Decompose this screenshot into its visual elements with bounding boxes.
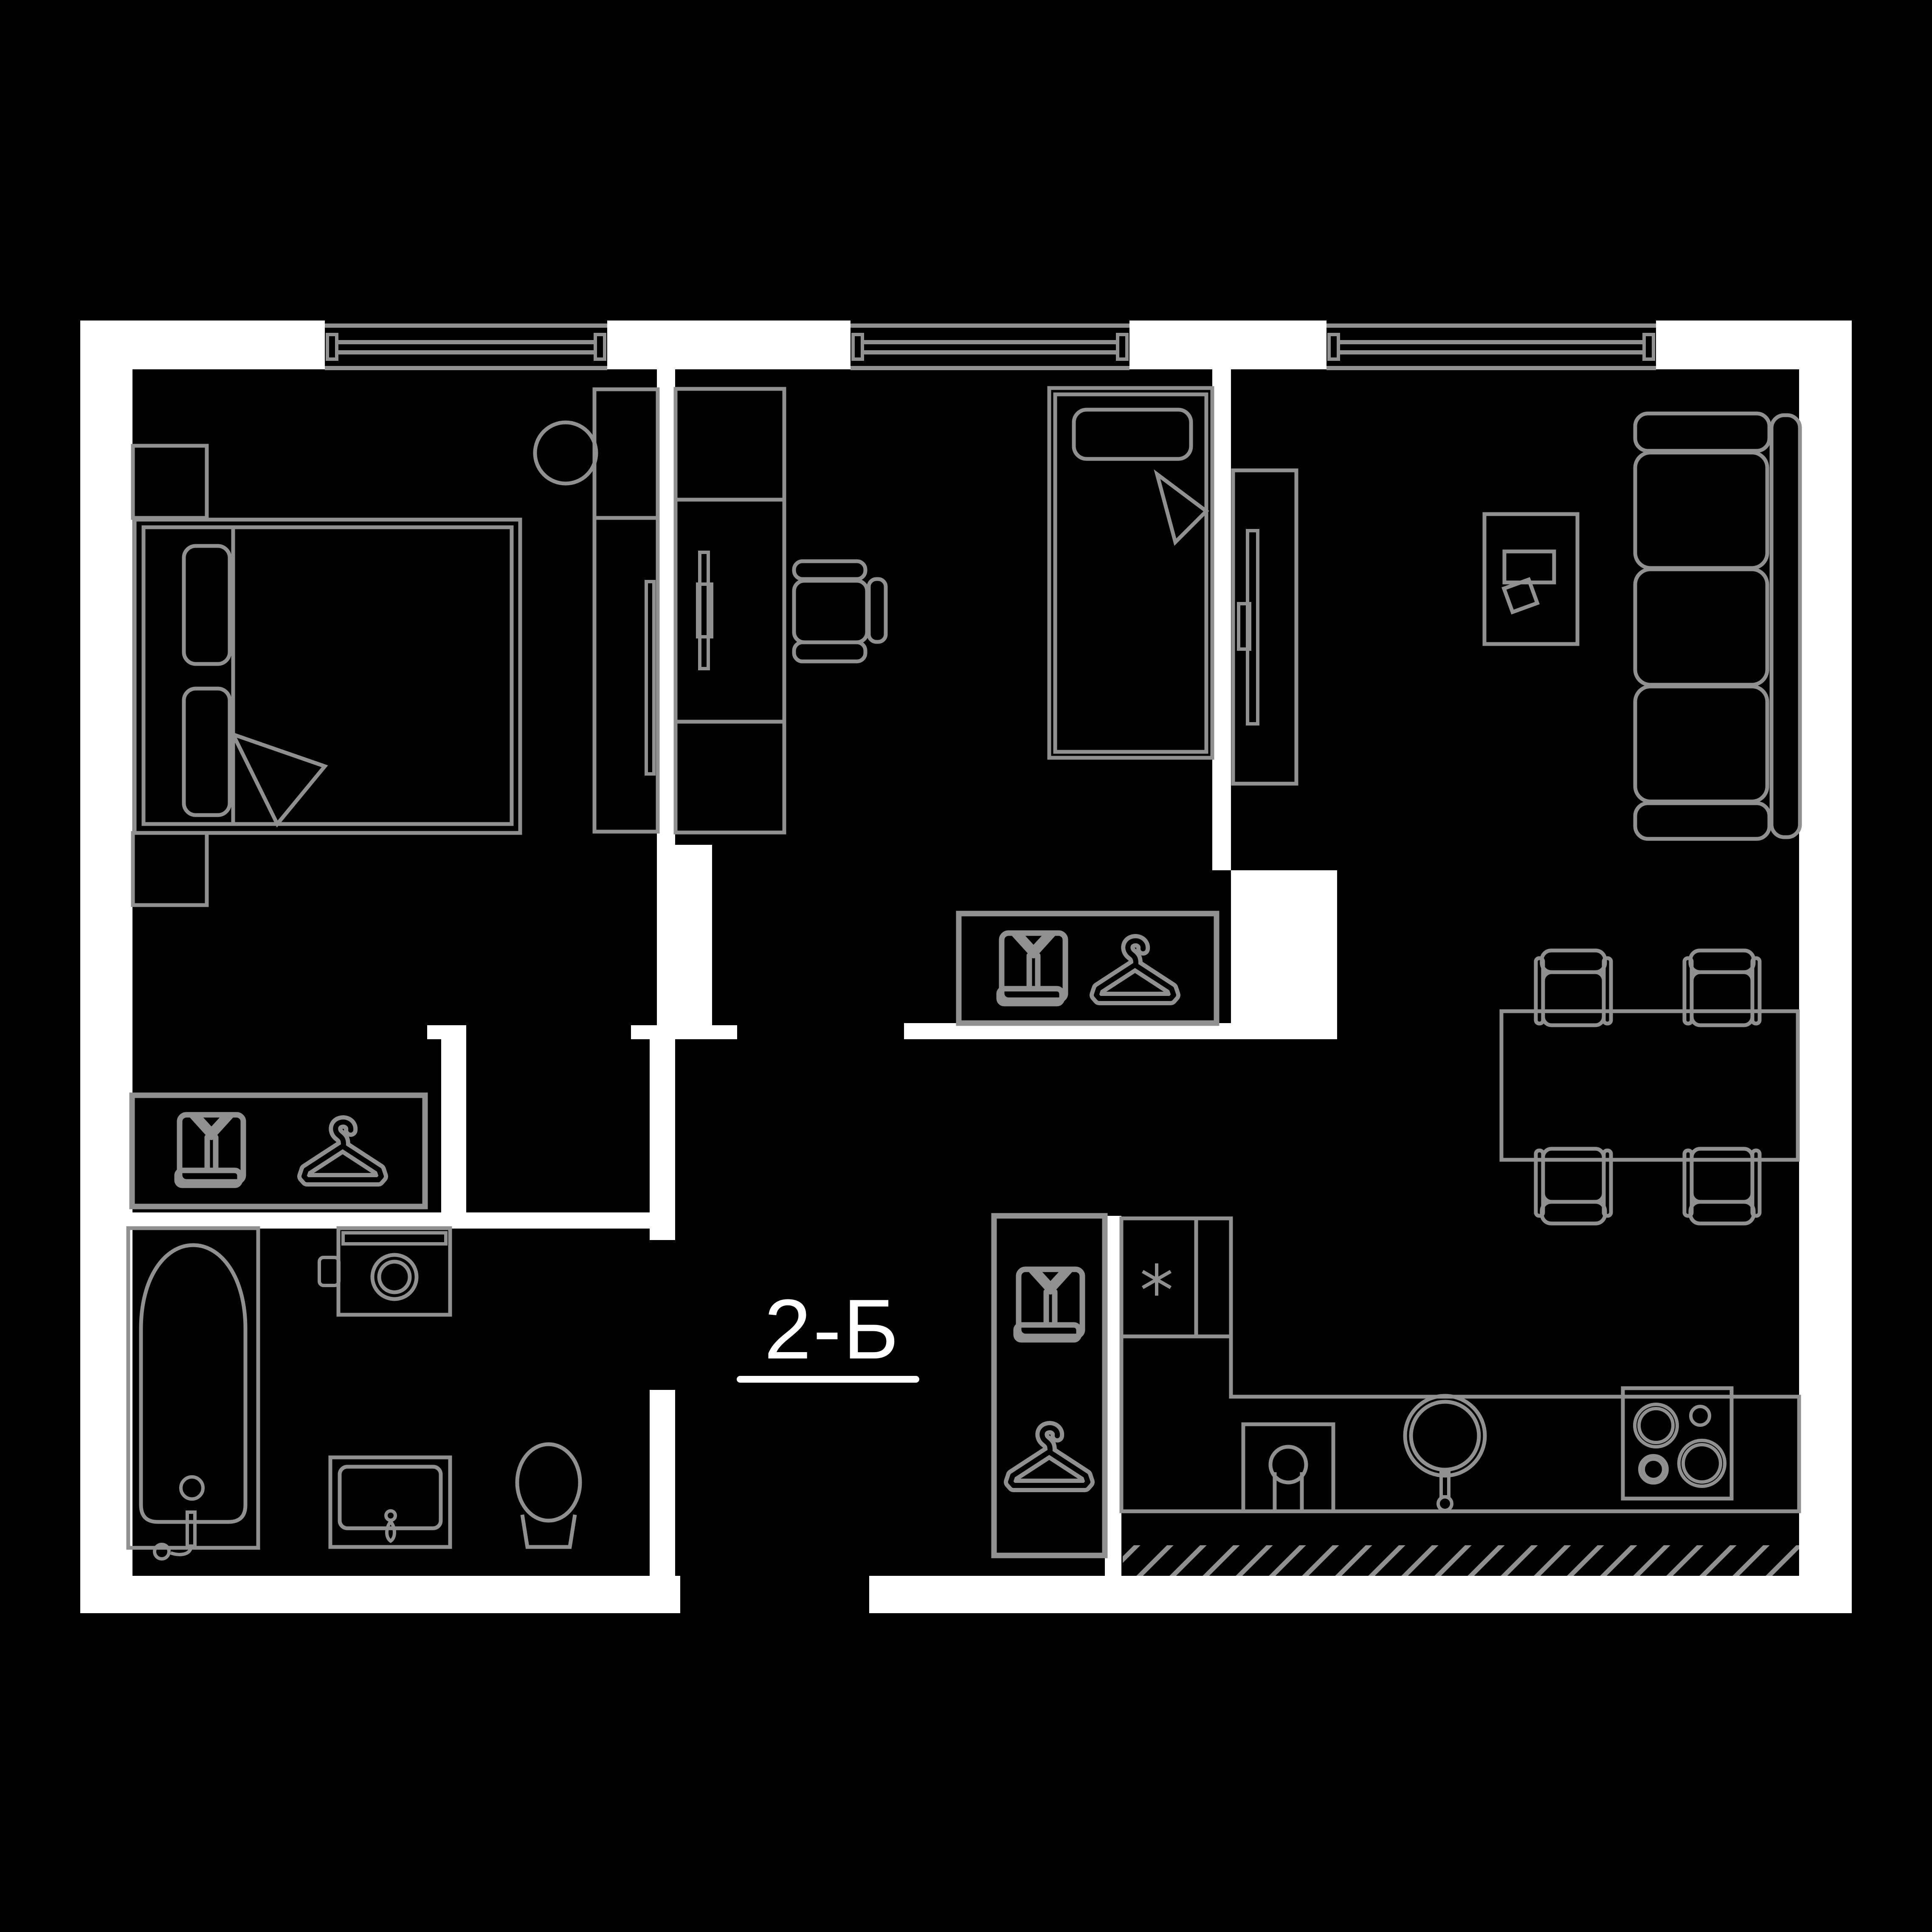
- blanket-fold: [1157, 474, 1206, 542]
- pillow: [184, 546, 230, 664]
- wall-right: [1799, 321, 1852, 1613]
- wall-bathroom-top: [128, 1212, 675, 1229]
- wall-bathroom-right-upper: [650, 1039, 675, 1240]
- apartment-label: 2-Б: [737, 1282, 919, 1383]
- wall-left: [80, 321, 132, 1613]
- faucet: [187, 1512, 195, 1546]
- shirt-icon: [999, 933, 1065, 1004]
- sofa-cushion: [1635, 569, 1767, 685]
- entry-wardrobe: [994, 1216, 1105, 1555]
- wall-cap-bedroom-door: [427, 1025, 466, 1039]
- wall-bathroom-right-lower: [650, 1390, 675, 1576]
- single-bed: [1049, 388, 1212, 758]
- floor-plan: 2-Б: [0, 0, 1932, 1932]
- hallway-wardrobe: [132, 1095, 425, 1206]
- bedroom: [133, 389, 658, 905]
- tv: [1248, 531, 1258, 724]
- window-living: [1326, 326, 1656, 368]
- apartment-label-text: 2-Б: [764, 1282, 900, 1377]
- tv-stand: [1233, 470, 1296, 784]
- wardrobe-bedroom: [594, 389, 658, 832]
- wall-living-pier: [1231, 870, 1337, 1039]
- balcony-hatch: [1123, 1545, 1799, 1576]
- bathtub: [128, 1228, 258, 1559]
- living-room: [1233, 413, 1800, 1223]
- wall-bottom-right: [869, 1576, 1852, 1613]
- dining-area: [1501, 951, 1798, 1223]
- bathroom-sink: [330, 1457, 450, 1547]
- drain: [181, 1477, 203, 1499]
- sofa: [1635, 413, 1800, 839]
- window-kidsroom: [851, 326, 1129, 368]
- dining-chair: [1684, 951, 1760, 1025]
- label-underline: [737, 1376, 919, 1383]
- toilet: [517, 1444, 580, 1547]
- fridge: [1121, 1218, 1231, 1336]
- kitchen-cabinet: [1243, 1424, 1333, 1511]
- monitor: [700, 552, 708, 669]
- snowflake-icon: [1143, 1263, 1171, 1296]
- wall-bedroom-kidsroom-lower: [657, 845, 712, 1025]
- wall-hallway-corridor: [441, 1039, 466, 1212]
- wall-top-pier-2: [607, 321, 851, 369]
- dressing-stool: [535, 422, 596, 484]
- shirt-icon: [177, 1115, 243, 1185]
- shirt-icon: [1016, 1269, 1082, 1340]
- nightstand: [133, 833, 207, 905]
- washing-machine: [319, 1228, 450, 1315]
- detergent-drawer: [319, 1257, 339, 1285]
- wardrobe-handle: [646, 582, 654, 774]
- sofa-cushion: [1635, 453, 1767, 568]
- hanger-icon: [1096, 941, 1174, 998]
- kitchen: [1121, 1218, 1799, 1576]
- nightstand: [133, 446, 207, 518]
- closet-kidsroom: [959, 914, 1217, 1023]
- pillow: [184, 689, 230, 815]
- stove: [1623, 1388, 1732, 1499]
- windows: [325, 326, 1656, 368]
- bathroom: [128, 1228, 580, 1559]
- sofa-cushion: [1635, 686, 1767, 801]
- wall-cap-kidsroom-door: [631, 1025, 737, 1039]
- dining-table: [1501, 1011, 1798, 1160]
- sofa-armrest: [1635, 803, 1769, 839]
- walls: [80, 321, 1852, 1613]
- hallway: [132, 1095, 1105, 1555]
- wall-bottom-left: [80, 1576, 680, 1613]
- kids-room: [676, 388, 1217, 1023]
- desk-chair: [794, 561, 886, 661]
- wall-kidsroom-living: [1212, 369, 1231, 870]
- laptop-paper: [1504, 579, 1537, 612]
- dining-chair: [1536, 951, 1611, 1025]
- window-bedroom: [325, 326, 607, 368]
- double-bed: [135, 520, 520, 833]
- pillow: [1074, 410, 1191, 459]
- coffee-table: [1484, 514, 1577, 644]
- wardrobe-desk-unit: [676, 389, 784, 832]
- sofa-armrest: [1635, 413, 1769, 451]
- wall-top-pier-3: [1129, 321, 1326, 369]
- hanger-icon: [304, 1122, 381, 1180]
- hanger-icon: [1011, 1428, 1088, 1485]
- blanket-fold: [233, 734, 325, 824]
- sofa-back: [1771, 415, 1800, 837]
- kitchen-sink: [1405, 1396, 1485, 1510]
